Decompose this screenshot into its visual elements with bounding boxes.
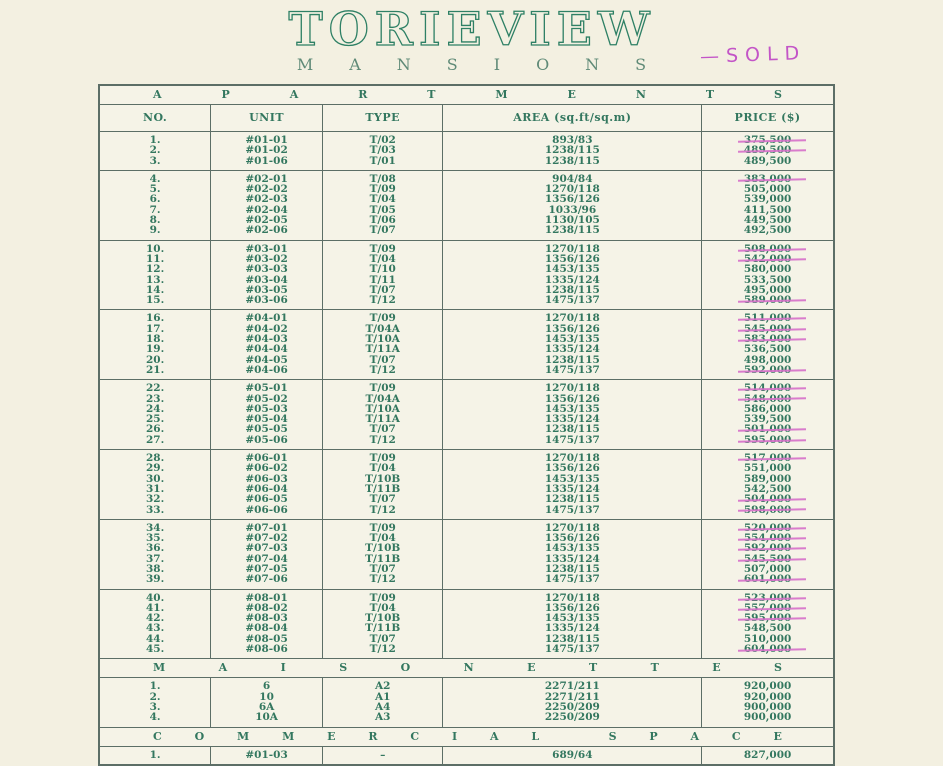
cell-type: T/09 (322, 450, 443, 464)
table-row: 32.#06-05T/071238/115504,000 (99, 494, 834, 504)
column-header-no: NO. (99, 105, 211, 132)
table-row: 19.#04-04T/11A1335/124536,500 (99, 344, 834, 354)
section-title-letter: C (410, 731, 419, 743)
section-title-letter: P (221, 89, 229, 101)
section-title-text: COMMERCIAL SPACE (101, 729, 832, 745)
cell-area: 1238/115 (443, 494, 702, 504)
cell-area: 1475/137 (443, 435, 702, 450)
section-title-letter: I (281, 662, 286, 674)
cell-price: 589,000 (702, 295, 834, 310)
price-value: 900,000 (744, 712, 792, 722)
cell-area: 1270/118 (443, 519, 702, 533)
section-title-letter: O (401, 662, 411, 674)
document-header: TORIEVIEW MANSIONS —SOLD (0, 0, 943, 84)
table-row: 5.#02-02T/091270/118505,000 (99, 184, 834, 194)
cell-no: 32. (99, 494, 211, 504)
cell-no: 22. (99, 380, 211, 394)
title-text: TORIEVIEW (288, 4, 655, 54)
section-title-letter: A (153, 89, 162, 101)
table-row: 23.#05-02T/04A1356/126548,000 (99, 394, 834, 404)
table-row: 26.#05-05T/071238/115501,000 (99, 424, 834, 434)
price-value: 492,500 (744, 225, 792, 235)
section-title-letter: M (237, 731, 249, 743)
cell-no: 28. (99, 450, 211, 464)
section-title-letter: E (712, 662, 720, 674)
cell-unit: #02-06 (211, 225, 323, 240)
column-header: NO.UNITTYPEAREA (sq.ft/sq.m)PRICE ($) (99, 105, 834, 132)
cell-no: 10. (99, 240, 211, 254)
cell-area: 1270/118 (443, 240, 702, 254)
row-group-apartments: 34.#07-01T/091270/118520,00035.#07-02T/0… (99, 519, 834, 589)
table-row: 28.#06-01T/091270/118517,000 (99, 450, 834, 464)
section-title-letter: N (464, 662, 474, 674)
section-title-letter: E (327, 731, 335, 743)
cell-price: 920,000 (702, 678, 834, 692)
table-row: 45.#08-06T/121475/137604,000 (99, 644, 834, 659)
table-row: 41.#08-02T/041356/126557,000 (99, 603, 834, 613)
cell-price: 504,000 (702, 494, 834, 504)
cell-price: 517,000 (702, 450, 834, 464)
row-group-maisonettes: 1.6A22271/211920,0002.10A12271/211920,00… (99, 678, 834, 727)
section-title-letter: R (368, 731, 377, 743)
row-group-commercial-space: 1.#01-03–689/64827,000 (99, 746, 834, 765)
section-title-letter: M (153, 662, 165, 674)
section-title-letter: A (490, 731, 499, 743)
cell-area: 2250/209 (443, 712, 702, 727)
cell-unit: #06-06 (211, 505, 323, 520)
table-row: 37.#07-04T/11B1335/124545,500 (99, 554, 834, 564)
section-title-letter: N (636, 89, 646, 101)
cell-no: 21. (99, 365, 211, 380)
cell-unit: #01-03 (211, 746, 323, 765)
section-title-cell: APARTMENTS (99, 85, 834, 105)
cell-type: T/09 (322, 519, 443, 533)
table-row: 14.#03-05T/071238/115495,000 (99, 285, 834, 295)
cell-area: 689/64 (443, 746, 702, 765)
table-row: 27.#05-06T/121475/137595,000 (99, 435, 834, 450)
cell-price: 492,500 (702, 225, 834, 240)
cell-price: 383,000 (702, 170, 834, 184)
cell-price: 520,000 (702, 519, 834, 533)
cell-no: 4. (99, 170, 211, 184)
cell-type: T/08 (322, 170, 443, 184)
cell-no: 45. (99, 644, 211, 659)
cell-area: 904/84 (443, 170, 702, 184)
section-title-letter: A (691, 731, 700, 743)
table-row: 39.#07-06T/121475/137601,000 (99, 574, 834, 589)
cell-type: T/12 (322, 574, 443, 589)
cell-area: 1270/118 (443, 450, 702, 464)
table-row: 35.#07-02T/041356/126554,000 (99, 533, 834, 543)
row-group-apartments: 4.#02-01T/08904/84383,0005.#02-02T/09127… (99, 170, 834, 240)
section-title-letter: T (427, 89, 435, 101)
price-sold: 598,000 (744, 505, 792, 515)
price-value: 489,500 (744, 156, 792, 166)
cell-price: 375,500 (702, 132, 834, 146)
cell-price: 595,000 (702, 435, 834, 450)
cell-no: 33. (99, 505, 211, 520)
section-title-maisonettes: MAISONETTES (99, 659, 834, 678)
cell-area: 1238/115 (443, 156, 702, 171)
cell-unit: #01-01 (211, 132, 323, 146)
cell-type: T/12 (322, 365, 443, 380)
cell-type: T/09 (322, 240, 443, 254)
document-page: TORIEVIEW MANSIONS —SOLD APARTMENTSNO.UN… (0, 0, 943, 717)
section-title-letter: C (153, 731, 162, 743)
cell-unit: #06-01 (211, 450, 323, 464)
cell-price: 514,000 (702, 380, 834, 394)
price-value: 827,000 (744, 750, 792, 760)
cell-no: 15. (99, 295, 211, 310)
cell-type: T/07 (322, 494, 443, 504)
section-title-letter: S (609, 731, 617, 743)
table-row: 2.10A12271/211920,000 (99, 692, 834, 702)
section-title-letter: O (195, 731, 205, 743)
table-row: 34.#07-01T/091270/118520,000 (99, 519, 834, 533)
cell-no: 1. (99, 678, 211, 692)
cell-type: T/02 (322, 132, 443, 146)
cell-area: 1270/118 (443, 380, 702, 394)
cell-no: 39. (99, 574, 211, 589)
section-title-apartments: APARTMENTS (99, 85, 834, 105)
table-row: 29.#06-02T/041356/126551,000 (99, 463, 834, 473)
row-group-apartments: 22.#05-01T/091270/118514,00023.#05-02T/0… (99, 380, 834, 450)
sold-annotation: —SOLD (700, 42, 807, 68)
cell-unit: #03-01 (211, 240, 323, 254)
cell-unit: #05-01 (211, 380, 323, 394)
cell-type: T/12 (322, 505, 443, 520)
price-sold: 601,000 (744, 574, 792, 584)
cell-price: 592,000 (702, 365, 834, 380)
section-title-letter: L (531, 731, 539, 743)
table-row: 43.#08-04T/11B1335/124548,500 (99, 623, 834, 633)
cell-type: T/09 (322, 589, 443, 603)
row-group-apartments: 40.#08-01T/091270/118523,00041.#08-02T/0… (99, 589, 834, 659)
section-title-text: APARTMENTS (101, 87, 832, 103)
table-row: 3.6AA42250/209900,000 (99, 702, 834, 712)
table-row: 4.#02-01T/08904/84383,000 (99, 170, 834, 184)
row-group-apartments: 16.#04-01T/091270/118511,00017.#04-02T/0… (99, 310, 834, 380)
section-title-letter: R (358, 89, 367, 101)
cell-unit: 6 (211, 678, 323, 692)
cell-price: 511,000 (702, 310, 834, 324)
table-row: 1.#01-01T/02893/83375,500 (99, 132, 834, 146)
table-row: 44.#08-05T/071238/115510,000 (99, 634, 834, 644)
section-title-letter: T (589, 662, 597, 674)
cell-area: 2271/211 (443, 678, 702, 692)
cell-unit: #01-06 (211, 156, 323, 171)
table-row: 3.#01-06T/011238/115489,500 (99, 156, 834, 171)
table-row: 9.#02-06T/071238/115492,500 (99, 225, 834, 240)
price-table: APARTMENTSNO.UNITTYPEAREA (sq.ft/sq.m)PR… (98, 84, 835, 766)
cell-price: 508,000 (702, 240, 834, 254)
table-row: 2.#01-02T/031238/115489,500 (99, 145, 834, 155)
section-title-letter: A (219, 662, 228, 674)
table-row: 1.#01-03–689/64827,000 (99, 746, 834, 765)
price-sold: 592,000 (744, 365, 792, 375)
cell-price: 827,000 (702, 746, 834, 765)
section-title-letter: S (774, 662, 782, 674)
price-sold: 589,000 (744, 295, 792, 305)
column-header-row: NO.UNITTYPEAREA (sq.ft/sq.m)PRICE ($) (99, 105, 834, 132)
section-title-letter: T (651, 662, 659, 674)
section-title-letter: T (706, 89, 714, 101)
section-title-letter: M (495, 89, 507, 101)
table-row: 30.#06-03T/10B1453/135589,000 (99, 474, 834, 484)
section-title-letter: M (282, 731, 294, 743)
cell-unit: #04-01 (211, 310, 323, 324)
section-title-letter: I (452, 731, 457, 743)
cell-no: 40. (99, 589, 211, 603)
table-row: 42.#08-03T/10B1453/135595,000 (99, 613, 834, 623)
cell-no: 4. (99, 712, 211, 727)
cell-area: 1270/118 (443, 589, 702, 603)
table-row: 22.#05-01T/091270/118514,000 (99, 380, 834, 394)
title-torieview: TORIEVIEW (212, 4, 732, 54)
cell-type: – (322, 746, 443, 765)
section-title-letter: A (290, 89, 299, 101)
cell-type: T/01 (322, 156, 443, 171)
cell-type: A3 (322, 712, 443, 727)
row-group-apartments: 28.#06-01T/091270/118517,00029.#06-02T/0… (99, 450, 834, 520)
cell-no: 16. (99, 310, 211, 324)
cell-area: 1475/137 (443, 295, 702, 310)
row-group-apartments: 10.#03-01T/091270/118508,00011.#03-02T/0… (99, 240, 834, 310)
section-title-letter: P (649, 731, 657, 743)
column-header-unit: UNIT (211, 105, 323, 132)
cell-type: T/07 (322, 225, 443, 240)
cell-unit: 10A (211, 712, 323, 727)
cell-unit: #03-06 (211, 295, 323, 310)
cell-type: T/09 (322, 380, 443, 394)
table-row: 36.#07-03T/10B1453/135592,000 (99, 543, 834, 553)
cell-type: T/09 (322, 310, 443, 324)
cell-no: 1. (99, 132, 211, 146)
section-title-letter (572, 731, 576, 743)
cell-no: 9. (99, 225, 211, 240)
table-row: 17.#04-02T/04A1356/126545,000 (99, 324, 834, 334)
table-row: 16.#04-01T/091270/118511,000 (99, 310, 834, 324)
cell-type: T/12 (322, 295, 443, 310)
cell-area: 1270/118 (443, 310, 702, 324)
cell-price: 601,000 (702, 574, 834, 589)
section-title-letter: E (774, 731, 782, 743)
table-row: 40.#08-01T/091270/118523,000 (99, 589, 834, 603)
row-group-apartments: 1.#01-01T/02893/83375,5002.#01-02T/03123… (99, 132, 834, 171)
table-row: 8.#02-05T/061130/105449,500 (99, 215, 834, 225)
cell-no: 27. (99, 435, 211, 450)
table-row: 1.6A22271/211920,000 (99, 678, 834, 692)
table-row: 6.#02-03T/041356/126539,000 (99, 194, 834, 204)
section-title-letter: S (339, 662, 347, 674)
table-row: 7.#02-04T/051033/96411,500 (99, 205, 834, 215)
cell-price: 523,000 (702, 589, 834, 603)
cell-unit: #04-06 (211, 365, 323, 380)
price-sold: 504,000 (744, 494, 792, 504)
table-row: 20.#04-05T/071238/115498,000 (99, 355, 834, 365)
table-row: 38.#07-05T/071238/115507,000 (99, 564, 834, 574)
cell-type: T/12 (322, 644, 443, 659)
table-row: 21.#04-06T/121475/137592,000 (99, 365, 834, 380)
section-title-cell: COMMERCIAL SPACE (99, 727, 834, 746)
section-title-row: APARTMENTS (99, 85, 834, 105)
table-row: 10.#03-01T/091270/118508,000 (99, 240, 834, 254)
column-header-price: PRICE ($) (702, 105, 834, 132)
table-row: 12.#03-03T/101453/135580,000 (99, 264, 834, 274)
section-title-commercial-space: COMMERCIAL SPACE (99, 727, 834, 746)
table-row: 31.#06-04T/11B1335/124542,500 (99, 484, 834, 494)
cell-unit: #08-06 (211, 644, 323, 659)
cell-unit: #07-01 (211, 519, 323, 533)
cell-unit: #06-05 (211, 494, 323, 504)
cell-price: 598,000 (702, 505, 834, 520)
section-title-row: COMMERCIAL SPACE (99, 727, 834, 746)
cell-area: 1475/137 (443, 505, 702, 520)
section-title-letter: E (568, 89, 576, 101)
column-header-area: AREA (sq.ft/sq.m) (443, 105, 702, 132)
price-sold: 514,000 (744, 383, 792, 393)
cell-no: 34. (99, 519, 211, 533)
table-row: 33.#06-06T/121475/137598,000 (99, 505, 834, 520)
table-row: 4.10AA32250/209900,000 (99, 712, 834, 727)
section-title-cell: MAISONETTES (99, 659, 834, 678)
cell-area: 1238/115 (443, 225, 702, 240)
cell-price: 900,000 (702, 712, 834, 727)
cell-type: T/12 (322, 435, 443, 450)
section-title-letter: C (732, 731, 741, 743)
cell-type: A2 (322, 678, 443, 692)
cell-no: 1. (99, 746, 211, 765)
cell-area: 1475/137 (443, 365, 702, 380)
cell-unit: #08-01 (211, 589, 323, 603)
table-row: 11.#03-02T/041356/126542,000 (99, 254, 834, 264)
cell-no: 3. (99, 156, 211, 171)
column-header-type: TYPE (322, 105, 443, 132)
cell-price: 489,500 (702, 156, 834, 171)
cell-area: 1475/137 (443, 644, 702, 659)
section-title-letter: S (774, 89, 782, 101)
cell-area: 1475/137 (443, 574, 702, 589)
price-sold: 595,000 (744, 435, 792, 445)
table-row: 13.#03-04T/111335/124533,500 (99, 275, 834, 285)
cell-unit: #05-06 (211, 435, 323, 450)
table-row: 25.#05-04T/11A1335/124539,500 (99, 414, 834, 424)
section-title-letter: E (527, 662, 535, 674)
table-row: 15.#03-06T/121475/137589,000 (99, 295, 834, 310)
table-row: 18.#04-03T/10A1453/135583,000 (99, 334, 834, 344)
cell-price: 604,000 (702, 644, 834, 659)
cell-area: 893/83 (443, 132, 702, 146)
section-title-row: MAISONETTES (99, 659, 834, 678)
price-sold: 604,000 (744, 644, 792, 654)
cell-unit: #02-01 (211, 170, 323, 184)
section-title-text: MAISONETTES (101, 660, 832, 676)
cell-unit: #07-06 (211, 574, 323, 589)
table-row: 24.#05-03T/10A1453/135586,000 (99, 404, 834, 414)
